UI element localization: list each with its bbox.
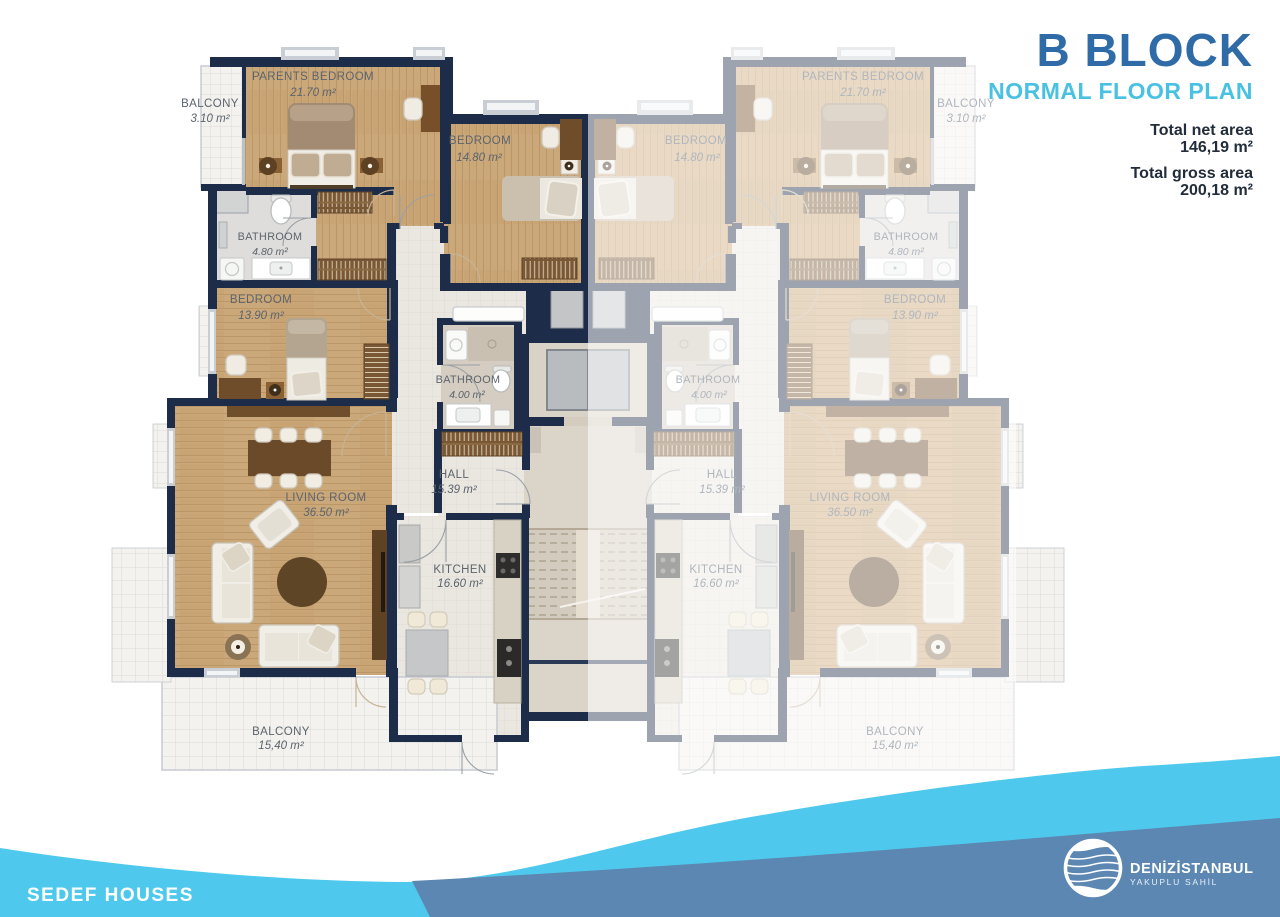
- svg-text:36.50 m²: 36.50 m²: [827, 507, 874, 519]
- svg-text:13.90 m²: 13.90 m²: [892, 310, 939, 322]
- svg-text:3.10 m²: 3.10 m²: [191, 113, 231, 125]
- svg-text:BALCONY: BALCONY: [937, 98, 995, 110]
- svg-text:15,40 m²: 15,40 m²: [872, 740, 919, 752]
- svg-text:KITCHEN: KITCHEN: [689, 564, 742, 576]
- svg-text:21.70 m²: 21.70 m²: [289, 87, 337, 99]
- svg-text:4.80 m²: 4.80 m²: [252, 246, 288, 258]
- svg-text:Total net area: Total net area: [1150, 122, 1253, 139]
- svg-text:BATHROOM: BATHROOM: [238, 231, 303, 243]
- svg-text:KITCHEN: KITCHEN: [433, 564, 486, 576]
- svg-text:PARENTS BEDROOM: PARENTS BEDROOM: [252, 71, 374, 83]
- svg-text:3.10 m²: 3.10 m²: [947, 113, 987, 125]
- svg-text:HALL: HALL: [439, 469, 470, 481]
- svg-text:13.90 m²: 13.90 m²: [238, 310, 285, 322]
- svg-text:BATHROOM: BATHROOM: [676, 374, 741, 386]
- svg-text:36.50 m²: 36.50 m²: [303, 507, 350, 519]
- svg-text:200,18 m²: 200,18 m²: [1180, 182, 1253, 199]
- svg-text:BALCONY: BALCONY: [866, 726, 924, 738]
- svg-text:Total gross area: Total gross area: [1131, 165, 1254, 182]
- svg-text:4.80 m²: 4.80 m²: [888, 246, 924, 258]
- svg-text:BEDROOM: BEDROOM: [449, 135, 511, 147]
- svg-text:B BLOCK: B BLOCK: [1036, 24, 1253, 76]
- svg-text:21.70 m²: 21.70 m²: [839, 87, 887, 99]
- svg-text:BATHROOM: BATHROOM: [436, 374, 501, 386]
- svg-text:15,40 m²: 15,40 m²: [258, 740, 305, 752]
- svg-text:NORMAL FLOOR PLAN: NORMAL FLOOR PLAN: [988, 78, 1253, 104]
- svg-text:PARENTS BEDROOM: PARENTS BEDROOM: [802, 71, 924, 83]
- svg-text:15.39 m²: 15.39 m²: [699, 484, 746, 496]
- svg-text:YAKUPLU SAHİL: YAKUPLU SAHİL: [1130, 877, 1218, 887]
- svg-text:4.00 m²: 4.00 m²: [691, 389, 727, 401]
- svg-text:BALCONY: BALCONY: [181, 98, 239, 110]
- svg-text:BEDROOM: BEDROOM: [884, 294, 946, 306]
- svg-text:BEDROOM: BEDROOM: [230, 294, 292, 306]
- svg-text:4.00 m²: 4.00 m²: [449, 389, 485, 401]
- svg-text:HALL: HALL: [707, 469, 738, 481]
- svg-text:BALCONY: BALCONY: [252, 726, 310, 738]
- svg-text:DENİZİSTANBUL: DENİZİSTANBUL: [1130, 860, 1254, 877]
- svg-text:LIVING ROOM: LIVING ROOM: [285, 492, 366, 504]
- svg-text:SEDEF HOUSES: SEDEF HOUSES: [27, 885, 194, 906]
- svg-text:146,19 m²: 146,19 m²: [1180, 139, 1253, 156]
- svg-text:15.39 m²: 15.39 m²: [431, 484, 478, 496]
- svg-text:14.80 m²: 14.80 m²: [674, 152, 721, 164]
- svg-text:16.60 m²: 16.60 m²: [693, 578, 740, 590]
- svg-text:16.60 m²: 16.60 m²: [437, 578, 484, 590]
- svg-text:LIVING ROOM: LIVING ROOM: [809, 492, 890, 504]
- svg-text:14.80 m²: 14.80 m²: [456, 152, 503, 164]
- svg-text:BATHROOM: BATHROOM: [874, 231, 939, 243]
- svg-text:BEDROOM: BEDROOM: [665, 135, 727, 147]
